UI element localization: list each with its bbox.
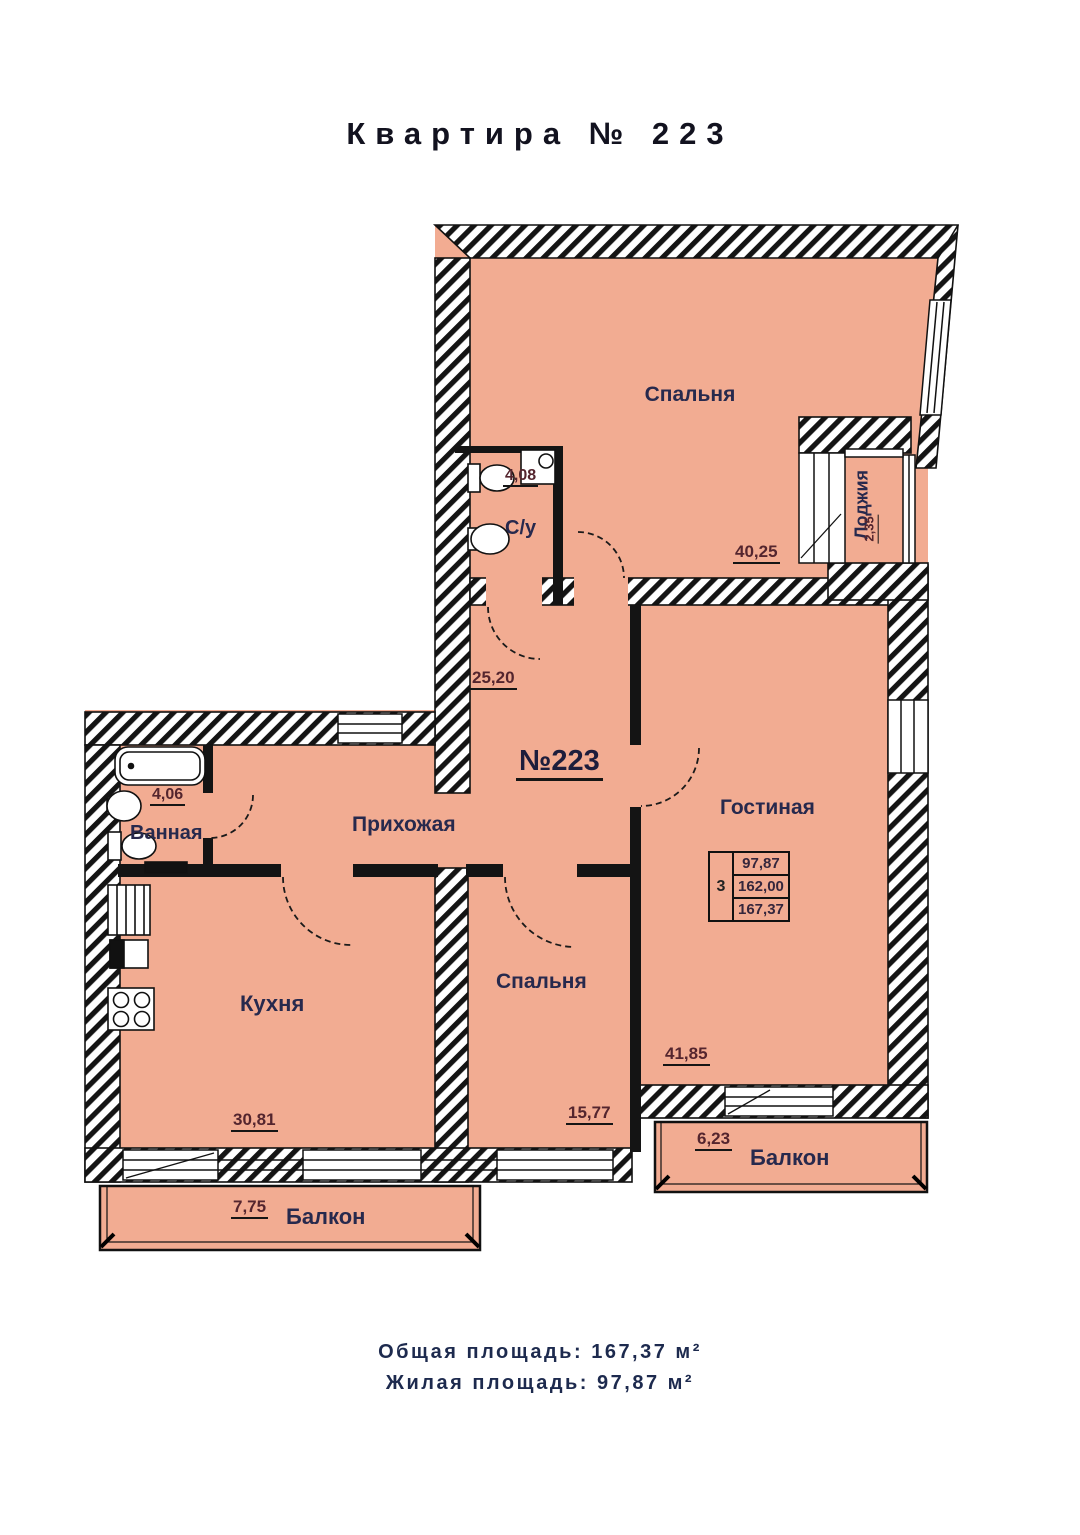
floor-area [85, 225, 958, 1182]
floor-plan-page: Квартира № 223 Спальня 40,25 С/у 4,08 Ло… [0, 0, 1080, 1535]
sink-icon [468, 524, 509, 554]
room-area-bedroom-bottom: 15,77 [566, 1103, 613, 1125]
room-label-su: С/у [505, 517, 536, 540]
room-area-kitchen: 30,81 [231, 1110, 278, 1132]
room-area-living: 41,85 [663, 1044, 710, 1066]
room-label-balcony-bottom: Балкон [286, 1204, 365, 1230]
room-area-su: 4,08 [503, 467, 538, 487]
room-area-bathroom: 4,06 [150, 786, 185, 806]
page-title: Квартира № 223 [0, 116, 1080, 152]
room-area-loggia: 2,35 [863, 514, 879, 543]
room-label-hallway: Прихожая [352, 813, 456, 837]
room-label-kitchen: Кухня [240, 991, 304, 1017]
room-label-bathroom: Ванная [130, 822, 203, 845]
threshold [145, 862, 187, 873]
kitchen-counter-icon [108, 885, 150, 968]
room-area-hallway: 25,20 [470, 668, 517, 690]
info-reduced-area: 162,00 [734, 876, 788, 899]
info-living-area: 97,87 [734, 853, 788, 876]
room-area-balcony-bottom: 7,75 [231, 1197, 268, 1219]
sink-icon [107, 791, 141, 821]
total-area-line: Общая площадь: 167,37 м² [0, 1337, 1080, 1368]
apartment-number-label: №223 [516, 745, 603, 781]
info-total-area: 167,37 [734, 899, 788, 920]
room-label-balcony-right: Балкон [750, 1145, 829, 1171]
info-rooms-count: 3 [710, 853, 734, 920]
room-label-bedroom-bottom: Спальня [496, 970, 587, 994]
bathtub-icon [115, 747, 205, 785]
room-label-living: Гостиная [720, 796, 815, 820]
living-area-line: Жилая площадь: 97,87 м² [0, 1368, 1080, 1399]
room-area-bedroom-top: 40,25 [733, 542, 780, 564]
area-info-table: 3 97,87 162,00 167,37 [708, 851, 790, 922]
room-label-bedroom-top: Спальня [600, 383, 780, 407]
area-summary: Общая площадь: 167,37 м² Жилая площадь: … [0, 1337, 1080, 1399]
room-area-balcony-right: 6,23 [695, 1129, 732, 1151]
stove-icon [108, 988, 154, 1030]
